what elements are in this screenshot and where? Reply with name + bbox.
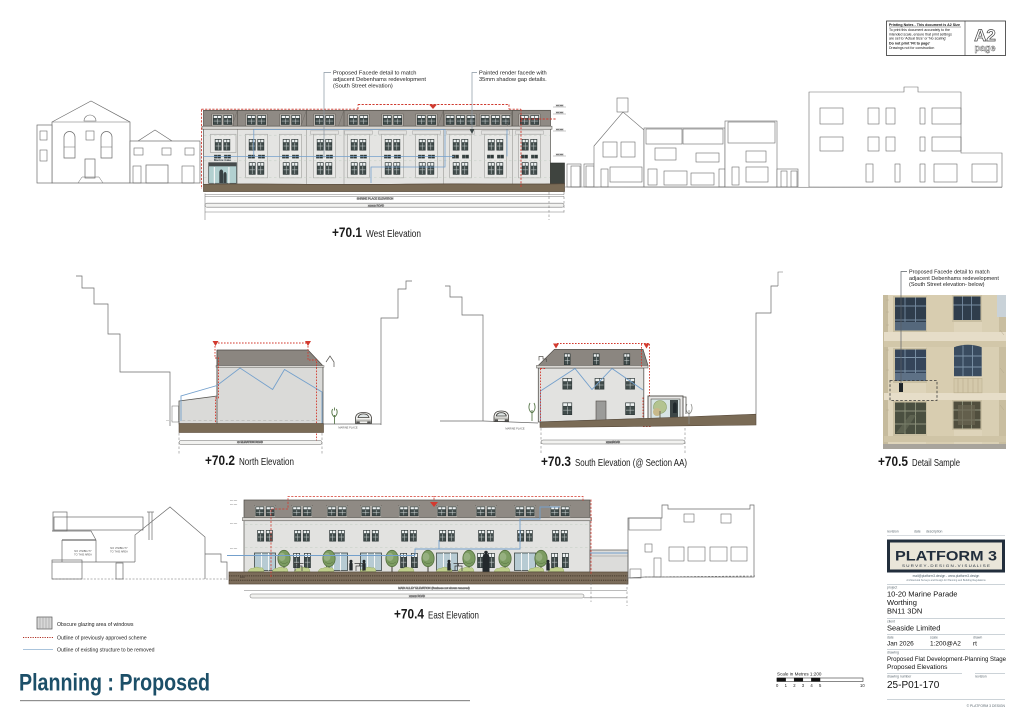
svg-text:West Elevation: West Elevation — [366, 228, 421, 240]
svg-text:Obscure glazing area of window: Obscure glazing area of windows — [57, 622, 134, 628]
svg-text:East Elevation: East Elevation — [428, 610, 479, 622]
svg-text:Jan 2026: Jan 2026 — [887, 641, 914, 648]
svg-text:Proposed Facede detail to matc: Proposed Facede detail to match — [333, 71, 416, 77]
svg-text:Scale in Metres 1:200: Scale in Metres 1:200 — [777, 672, 822, 677]
svg-text:xxx xxx: xxx xxx — [230, 500, 238, 502]
svg-text:revision: revision — [975, 675, 987, 679]
svg-text:Proposed Elevations: Proposed Elevations — [887, 664, 948, 671]
svg-text:Architectural Surveys and Desi: Architectural Surveys and Design for Pla… — [906, 579, 986, 582]
svg-text:xxx xxx: xxx xxx — [556, 154, 564, 156]
svg-text:PLATFORM 3: PLATFORM 3 — [895, 548, 997, 564]
svg-text:xxx xxx: xxx xxx — [230, 504, 238, 506]
svg-text:1:200@A2: 1:200@A2 — [930, 641, 961, 648]
svg-text:drawing: drawing — [887, 651, 899, 655]
svg-text:NO VISIBILITY: NO VISIBILITY — [110, 546, 128, 550]
svg-text:North Elevation: North Elevation — [239, 456, 294, 468]
svg-text:+70.2: +70.2 — [205, 453, 235, 468]
svg-text:rt: rt — [973, 641, 977, 648]
svg-text:xxxxxROAD: xxxxxROAD — [606, 440, 620, 444]
svg-text:xxx xxx: xxx xxx — [556, 129, 564, 131]
svg-text:xxxxxx ROAD: xxxxxx ROAD — [368, 203, 384, 207]
svg-text:South Elevation (@ Section AA: South Elevation (@ Section AA) — [575, 457, 687, 469]
svg-text:TO THIS AREA: TO THIS AREA — [74, 553, 92, 557]
svg-text:S U R V E Y - D E S I G N - V: S U R V E Y - D E S I G N - V I S U A L … — [902, 564, 991, 568]
svg-text:MARINE PLACE: MARINE PLACE — [505, 427, 525, 431]
svg-text:+70.4: +70.4 — [394, 607, 424, 622]
svg-text:Do not print 'Fit to page': Do not print 'Fit to page' — [889, 41, 930, 45]
svg-text:Outline of existing structure: Outline of existing structure to be remo… — [57, 648, 155, 654]
svg-text:10: 10 — [860, 683, 865, 688]
svg-text:xxxxxx ROAD: xxxxxx ROAD — [409, 594, 425, 598]
svg-text:TO THIS AREA: TO THIS AREA — [110, 550, 128, 554]
svg-text:SHRINE PLACE ELEVATION: SHRINE PLACE ELEVATION — [357, 197, 394, 201]
svg-text:Outline of previously approved: Outline of previously approved scheme — [57, 636, 147, 642]
svg-text:scale: scale — [930, 636, 938, 640]
svg-text:xxx xxx: xxx xxx — [230, 548, 238, 550]
svg-text:Painted render facede with: Painted render facede with — [479, 71, 547, 77]
svg-text:Detail Sample: Detail Sample — [912, 457, 960, 469]
svg-text:Proposed Facede detail to matc: Proposed Facede detail to match — [909, 270, 990, 276]
svg-text:Planning : Proposed: Planning : Proposed — [19, 670, 210, 697]
svg-text:(South Street elevation- below: (South Street elevation- below) — [909, 282, 985, 288]
svg-text:xxx xxx: xxx xxx — [230, 523, 238, 525]
svg-text:mail@platform3.design - www.pl: mail@platform3.design - www.platform3.de… — [913, 574, 980, 578]
svg-text:date: date — [887, 636, 894, 640]
svg-text:xx ELEVATION ROAD: xx ELEVATION ROAD — [237, 440, 263, 444]
svg-text:page: page — [974, 43, 995, 53]
svg-text:Printing Notes - This document: Printing Notes - This document is A2 Siz… — [889, 23, 960, 27]
svg-text:+70.3: +70.3 — [541, 454, 571, 469]
svg-text:BN11 3DN: BN11 3DN — [887, 607, 922, 616]
svg-text:are set to 'Actual Size' or 'N: are set to 'Actual Size' or 'No scaling' — [889, 37, 946, 41]
svg-text:Seaside Limited: Seaside Limited — [887, 624, 940, 633]
svg-text:+70.1: +70.1 — [332, 225, 362, 240]
svg-text:+70.5: +70.5 — [878, 454, 908, 469]
svg-text:adjacent Debenhams redevelopme: adjacent Debenhams redevelopment — [909, 276, 999, 282]
svg-text:xxx xxx: xxx xxx — [556, 112, 564, 114]
svg-text:revision: revision — [887, 530, 899, 534]
svg-text:drawn: drawn — [973, 636, 982, 640]
svg-text:Marine Gate: Marine Gate — [214, 158, 232, 162]
svg-text:MAIN ALLEY ELEVATION (Business: MAIN ALLEY ELEVATION (Business not shown… — [398, 586, 470, 590]
svg-text:xxx xxx: xxx xxx — [556, 105, 564, 107]
svg-text:xxxx: xxxx — [240, 576, 246, 579]
svg-text:drawing number: drawing number — [887, 675, 912, 679]
svg-text:description: description — [926, 530, 943, 534]
svg-text:date: date — [914, 530, 921, 534]
svg-text:25-P01-170: 25-P01-170 — [887, 680, 940, 691]
svg-text:NO VISIBILITY: NO VISIBILITY — [74, 549, 92, 553]
svg-text:35mm shadow gap details.: 35mm shadow gap details. — [479, 77, 547, 83]
svg-text:adjacent Debenhams redevelopme: adjacent Debenhams redevelopment — [333, 77, 426, 83]
svg-text:Drawings not for construction: Drawings not for construction — [889, 46, 934, 50]
svg-text:(South Street elevation): (South Street elevation) — [333, 84, 393, 90]
svg-text:Proposed Flat Development-Plan: Proposed Flat Development-Planning Stage — [887, 656, 1006, 663]
svg-text:© PLATFORM 3 DESIGN: © PLATFORM 3 DESIGN — [967, 704, 1006, 708]
svg-text:MARINE PLACE: MARINE PLACE — [338, 426, 358, 430]
